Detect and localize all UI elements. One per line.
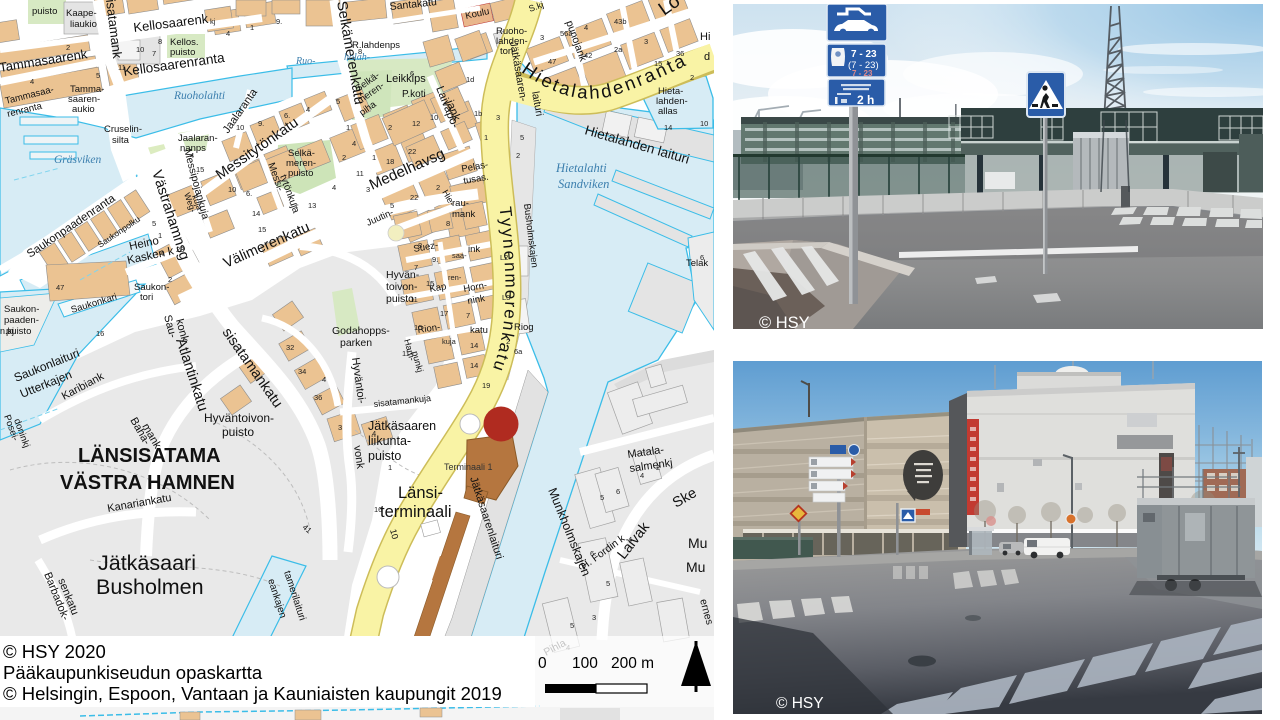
svg-text:2: 2 xyxy=(342,153,346,162)
svg-text:4: 4 xyxy=(226,29,230,38)
svg-text:Hyväntoivon-: Hyväntoivon- xyxy=(204,411,274,425)
svg-text:1: 1 xyxy=(158,231,162,240)
svg-text:7 - 23: 7 - 23 xyxy=(851,49,877,60)
svg-text:4: 4 xyxy=(584,23,588,32)
svg-text:parken: parken xyxy=(340,337,372,349)
svg-text:36: 36 xyxy=(314,393,322,402)
svg-text:4: 4 xyxy=(640,471,644,480)
svg-text:3: 3 xyxy=(592,613,596,622)
svg-text:4: 4 xyxy=(352,139,356,148)
svg-text:2a: 2a xyxy=(614,45,623,54)
svg-text:2 h: 2 h xyxy=(857,93,874,107)
svg-text:© HSY 2020: © HSY 2020 xyxy=(3,641,106,662)
svg-text:7: 7 xyxy=(414,263,418,272)
svg-text:1: 1 xyxy=(294,201,298,210)
svg-text:9.: 9. xyxy=(276,17,282,26)
svg-text:15: 15 xyxy=(654,59,662,68)
svg-text:ink: ink xyxy=(468,244,480,255)
svg-text:5: 5 xyxy=(152,219,156,228)
svg-text:15: 15 xyxy=(258,225,266,234)
svg-text:3: 3 xyxy=(644,37,648,46)
svg-text:ren-: ren- xyxy=(448,273,462,282)
svg-text:L3: L3 xyxy=(502,293,510,302)
svg-text:Jätkäsaari: Jätkäsaari xyxy=(98,551,196,575)
svg-text:n.kj: n.kj xyxy=(0,326,14,336)
svg-text:4: 4 xyxy=(306,105,310,114)
svg-text:5: 5 xyxy=(600,493,604,502)
svg-text:2: 2 xyxy=(436,183,440,192)
svg-text:13: 13 xyxy=(308,201,316,210)
svg-text:1: 1 xyxy=(372,153,376,162)
svg-text:8: 8 xyxy=(446,219,450,228)
svg-text:47: 47 xyxy=(56,283,64,292)
svg-text:7 - 23: 7 - 23 xyxy=(852,69,873,78)
svg-text:L2: L2 xyxy=(500,253,508,262)
svg-text:2: 2 xyxy=(66,43,70,52)
svg-text:200 m: 200 m xyxy=(611,655,654,672)
svg-text:5: 5 xyxy=(570,621,574,630)
svg-text:8: 8 xyxy=(158,37,162,46)
svg-text:allas: allas xyxy=(658,106,678,117)
svg-text:terminaali: terminaali xyxy=(380,503,452,521)
svg-text:47: 47 xyxy=(548,57,556,66)
svg-text:Cruselin-: Cruselin- xyxy=(104,124,142,135)
svg-text:14: 14 xyxy=(252,209,260,218)
svg-text:100: 100 xyxy=(572,655,598,672)
svg-text:Mu: Mu xyxy=(688,535,707,551)
svg-text:2: 2 xyxy=(656,463,660,472)
svg-text:2: 2 xyxy=(168,275,172,284)
svg-text:11: 11 xyxy=(356,169,364,178)
svg-text:1d: 1d xyxy=(466,75,474,84)
svg-text:8: 8 xyxy=(418,241,422,250)
svg-text:mank: mank xyxy=(452,209,475,220)
svg-text:4: 4 xyxy=(372,429,376,438)
svg-text:9.: 9. xyxy=(432,255,438,264)
svg-text:puisto: puisto xyxy=(222,425,254,439)
svg-text:paaden-: paaden- xyxy=(4,315,39,326)
svg-text:14: 14 xyxy=(664,123,672,132)
svg-text:Mu: Mu xyxy=(686,559,705,575)
svg-text:VÄSTRA HAMNEN: VÄSTRA HAMNEN xyxy=(60,471,235,494)
svg-text:11: 11 xyxy=(410,295,418,304)
svg-text:15: 15 xyxy=(426,279,434,288)
svg-text:Länsi-: Länsi- xyxy=(398,484,443,502)
svg-text:17: 17 xyxy=(440,309,448,318)
svg-text:© HSY: © HSY xyxy=(759,314,810,329)
svg-text:56a: 56a xyxy=(560,29,573,38)
svg-text:Sandviken: Sandviken xyxy=(558,177,609,191)
svg-text:43b: 43b xyxy=(614,17,627,26)
svg-text:6: 6 xyxy=(700,253,704,262)
svg-text:2: 2 xyxy=(516,151,520,160)
svg-text:5: 5 xyxy=(96,71,100,80)
svg-text:tori: tori xyxy=(140,292,153,303)
svg-text:Saukon-: Saukon- xyxy=(4,304,39,315)
svg-text:1: 1 xyxy=(346,123,350,132)
svg-text:Ruoholahti: Ruoholahti xyxy=(173,90,225,102)
svg-text:4: 4 xyxy=(332,183,336,192)
svg-text:3: 3 xyxy=(338,423,342,432)
svg-text:2: 2 xyxy=(690,73,694,82)
svg-text:1: 1 xyxy=(484,133,488,142)
svg-text:6.: 6. xyxy=(284,111,290,120)
svg-text:22: 22 xyxy=(410,193,418,202)
svg-text:34: 34 xyxy=(298,367,306,376)
svg-text:Pääkaupunkiseudun opaskartta: Pääkaupunkiseudun opaskartta xyxy=(3,662,263,683)
svg-text:18: 18 xyxy=(386,157,394,166)
svg-text:3: 3 xyxy=(496,113,500,122)
svg-text:Godahopps-: Godahopps- xyxy=(332,325,390,337)
svg-text:saa-: saa- xyxy=(452,251,467,260)
svg-text:Leikkips: Leikkips xyxy=(386,73,426,85)
svg-text:12: 12 xyxy=(412,119,420,128)
svg-text:22: 22 xyxy=(408,147,416,156)
svg-text:puisto: puisto xyxy=(288,168,313,179)
svg-text:d: d xyxy=(704,51,710,63)
svg-text:14: 14 xyxy=(470,341,478,350)
svg-text:silta: silta xyxy=(112,135,130,146)
svg-text:16: 16 xyxy=(374,505,382,514)
svg-text:19: 19 xyxy=(482,381,490,390)
svg-text:Kaape-: Kaape- xyxy=(66,8,97,19)
svg-text:2: 2 xyxy=(506,337,510,346)
svg-text:5: 5 xyxy=(606,579,610,588)
svg-text:4: 4 xyxy=(322,375,326,384)
svg-text:4: 4 xyxy=(30,77,34,86)
svg-text:kj: kj xyxy=(210,17,216,26)
svg-text:23: 23 xyxy=(176,245,184,254)
svg-text:6.: 6. xyxy=(590,549,596,558)
svg-text:P.koti: P.koti xyxy=(402,89,426,100)
svg-text:kuja: kuja xyxy=(442,337,457,346)
svg-text:4: 4 xyxy=(190,151,194,160)
svg-text:puisto: puisto xyxy=(32,6,57,17)
svg-text:Jätkäsaaren: Jätkäsaaren xyxy=(368,419,436,433)
svg-text:36: 36 xyxy=(676,49,684,58)
svg-text:5: 5 xyxy=(336,97,340,106)
svg-text:14: 14 xyxy=(470,361,478,370)
svg-text:1: 1 xyxy=(250,23,254,32)
svg-text:11: 11 xyxy=(402,349,410,358)
svg-text:11: 11 xyxy=(118,63,126,72)
svg-text:4: 4 xyxy=(160,249,164,258)
svg-text:10: 10 xyxy=(430,113,438,122)
svg-text:puisto: puisto xyxy=(368,449,401,463)
svg-text:42: 42 xyxy=(584,51,592,60)
svg-text:7: 7 xyxy=(152,49,156,58)
svg-text:7: 7 xyxy=(466,311,470,320)
svg-text:Terminaali 1: Terminaali 1 xyxy=(444,462,493,472)
svg-text:Gräsviken: Gräsviken xyxy=(54,154,102,166)
svg-text:10: 10 xyxy=(228,185,236,194)
svg-text:32: 32 xyxy=(286,343,294,352)
svg-text:0: 0 xyxy=(538,655,547,672)
svg-text:4: 4 xyxy=(628,535,632,544)
svg-text:1b: 1b xyxy=(474,109,482,118)
svg-text:toivon-: toivon- xyxy=(386,281,418,293)
svg-text:9.: 9. xyxy=(258,119,264,128)
svg-text:10: 10 xyxy=(236,123,244,132)
svg-text:Telak: Telak xyxy=(686,258,708,269)
svg-text:liaukio: liaukio xyxy=(70,19,97,30)
svg-text:10: 10 xyxy=(136,45,144,54)
svg-text:6: 6 xyxy=(616,487,620,496)
svg-text:© HSY: © HSY xyxy=(776,695,824,712)
svg-text:Ruo-: Ruo- xyxy=(295,56,315,67)
svg-text:LÄNSISATAMA: LÄNSISATAMA xyxy=(78,444,221,467)
svg-text:5: 5 xyxy=(390,201,394,210)
svg-text:1: 1 xyxy=(388,463,392,472)
svg-text:10: 10 xyxy=(700,119,708,128)
svg-text:10: 10 xyxy=(414,323,422,332)
svg-text:Hi: Hi xyxy=(700,31,710,43)
svg-text:15: 15 xyxy=(196,165,204,174)
svg-text:Hietalahti: Hietalahti xyxy=(555,161,607,175)
svg-text:puisto: puisto xyxy=(170,47,195,58)
svg-text:8: 8 xyxy=(358,47,362,56)
svg-text:16: 16 xyxy=(96,329,104,338)
svg-text:© Helsingin, Espoon, Vantaan j: © Helsingin, Espoon, Vantaan ja Kauniais… xyxy=(3,683,502,704)
svg-text:Busholmen: Busholmen xyxy=(96,575,204,599)
svg-text:5: 5 xyxy=(520,133,524,142)
svg-text:2: 2 xyxy=(388,123,392,132)
svg-text:aukio: aukio xyxy=(72,104,95,115)
svg-text:6a: 6a xyxy=(514,347,523,356)
svg-text:3: 3 xyxy=(366,185,370,194)
svg-text:3: 3 xyxy=(540,33,544,42)
svg-text:6.: 6. xyxy=(246,189,252,198)
svg-text:katu: katu xyxy=(470,325,488,336)
svg-text:6: 6 xyxy=(410,69,414,78)
